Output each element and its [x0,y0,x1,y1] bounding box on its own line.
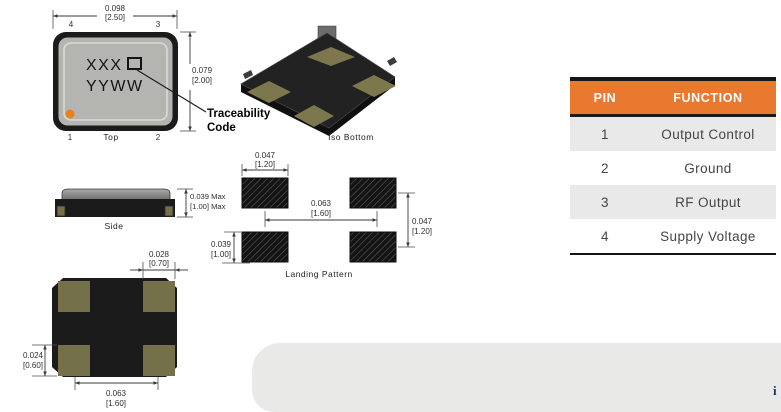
header-function: FUNCTION [640,91,776,105]
bottom-pad-width-inch: 0.028 [149,250,170,259]
side-lid [62,189,170,200]
traceability-callout-line1: Traceability [207,108,271,120]
watermark-smudge [252,343,781,412]
traceability-square [128,58,141,69]
landing-pitch-y-mm: [1.20] [412,227,432,236]
landing-pad-width-inch: 0.047 [255,151,276,160]
cell-function: RF Output [640,195,776,210]
watermark-text-fragment: i [773,383,777,399]
side-height-inch: 0.039 Max [190,192,226,201]
top-view: 0.098 [2.50] 0.079 [2.00] XXX YYWW 4 3 1… [53,4,271,142]
landing-pad [350,178,396,208]
top-width-mm: [2.50] [105,13,125,22]
landing-pitch-x-mm: [1.60] [311,209,331,218]
marking-line2: YYWW [86,78,144,95]
landing-pattern-label: Landing Pattern [285,269,353,279]
pin-number-1: 1 [68,133,73,142]
side-pad [165,206,173,216]
pin-number-2: 2 [156,133,161,142]
bottom-pad [143,281,175,312]
table-row: 1 Output Control [570,117,776,151]
iso-bottom-view: Iso Bottom [241,26,397,142]
bottom-pad [143,345,175,376]
table-row: 3 RF Output [570,185,776,219]
bottom-pad-width-mm: [0.70] [149,259,169,268]
cell-function: Output Control [640,127,776,142]
iso-side-tab [387,57,397,66]
bottom-view: 0.028 [0.70] 0.024 [0.60] 0.063 [1.60] [23,250,188,408]
iso-view-label: Iso Bottom [328,132,374,142]
side-height-mm: [1.00] Max [190,202,226,211]
landing-pattern: 0.047 [1.20] 0.063 [1.60] 0.047 [1.20] 0… [211,151,433,279]
landing-pad-height-inch: 0.039 [211,240,232,249]
pin-function-table: PIN FUNCTION 1 Output Control 2 Ground 3… [570,77,776,255]
cell-pin: 1 [570,127,640,142]
side-body [55,199,175,217]
landing-pad-height-mm: [1.00] [211,250,231,259]
side-view: Side 0.039 Max [1.00] Max [55,189,226,231]
landing-pad-width-mm: [1.20] [255,160,275,169]
landing-pitch-x-inch: 0.063 [311,199,332,208]
bottom-pad [58,281,90,312]
side-pad [57,206,65,216]
table-row: 4 Supply Voltage [570,219,776,253]
pin1-indicator-dot [66,110,75,119]
cell-function: Supply Voltage [640,229,776,244]
landing-pitch-y-inch: 0.047 [412,217,433,226]
table-header-row: PIN FUNCTION [570,81,776,117]
cell-pin: 2 [570,161,640,176]
landing-pad [242,178,288,208]
bottom-pad-height-inch: 0.024 [23,351,44,360]
header-pin: PIN [570,91,640,105]
pin-number-4: 4 [69,20,74,29]
top-height-inch: 0.079 [192,66,213,75]
table-row: 2 Ground [570,151,776,185]
top-view-label: Top [103,132,118,142]
side-view-label: Side [104,221,123,231]
landing-pad [242,232,288,262]
cell-pin: 4 [570,229,640,244]
traceability-callout-line2: Code [207,122,236,134]
bottom-pitch-inch: 0.063 [106,389,127,398]
marking-line1: XXX [86,57,123,74]
bottom-pad [58,345,90,376]
bottom-pad-height-mm: [0.60] [23,361,43,370]
top-height-mm: [2.00] [192,76,212,85]
top-width-inch: 0.098 [105,4,126,13]
bottom-pitch-mm: [1.60] [106,399,126,408]
cell-function: Ground [640,161,776,176]
pin-number-3: 3 [156,20,161,29]
landing-pad [350,232,396,262]
cell-pin: 3 [570,195,640,210]
